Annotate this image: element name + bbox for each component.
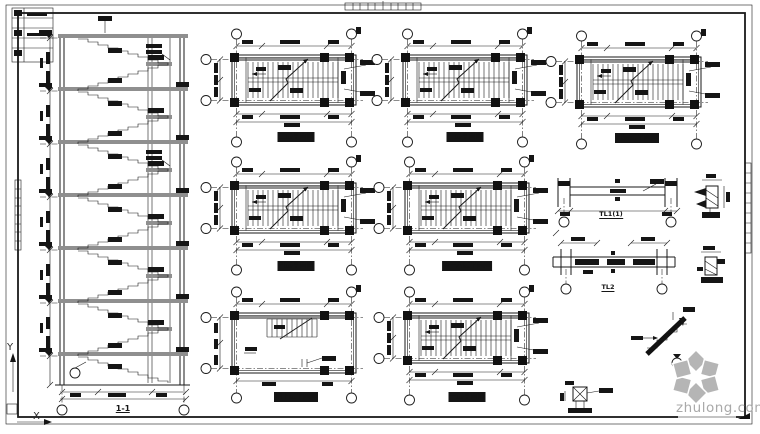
plan-title-3: 机房层平面图 <box>615 133 659 143</box>
stair-plan-4 <box>201 155 375 275</box>
section-level-markers <box>39 30 60 388</box>
beam-title-tl2: TL2 <box>601 284 614 292</box>
ucs-y-label: Y <box>7 343 13 353</box>
plan-title-5: 五~六层平面图 <box>442 261 492 271</box>
plan-title-7: 一层平面图 <box>449 392 486 402</box>
beam-title-tl1: TL1(1) <box>599 211 623 219</box>
beam-detail-tl1 <box>555 178 680 227</box>
beam-section-a <box>694 174 730 218</box>
border-ruler-right <box>745 163 751 253</box>
ucs-icon <box>7 353 52 425</box>
stair-section-1-1 <box>39 16 190 415</box>
stair-plan-3 <box>546 29 720 149</box>
cad-drawing-sheet: 二层平面图 三层平面图 机房层平面图 四层平面图 五~六层平面图 地下层平面图 … <box>0 0 760 434</box>
beam-section-b <box>697 246 725 283</box>
plan-title-4: 四层平面图 <box>278 261 315 271</box>
plan-title-2: 三层平面图 <box>447 132 484 142</box>
stair-plan-6 <box>201 285 363 403</box>
plan-title-6: 地下层平面图 <box>274 392 318 402</box>
stair-plan-2 <box>372 27 546 147</box>
watermark-text: zhulong.com <box>676 400 760 416</box>
section-title: 1-1 <box>116 405 130 413</box>
stair-plan-5 <box>374 155 548 275</box>
stair-plan-7 <box>374 285 548 405</box>
border-ruler-top <box>345 1 421 10</box>
stair-plan-1 <box>201 27 375 147</box>
plan-title-1: 二层平面图 <box>278 132 315 142</box>
section-label-blobs <box>98 16 189 369</box>
stair-step-detail <box>631 307 695 368</box>
drawing-linework <box>0 0 760 434</box>
column-base-detail <box>560 381 613 413</box>
ucs-x-label: X <box>33 412 40 422</box>
